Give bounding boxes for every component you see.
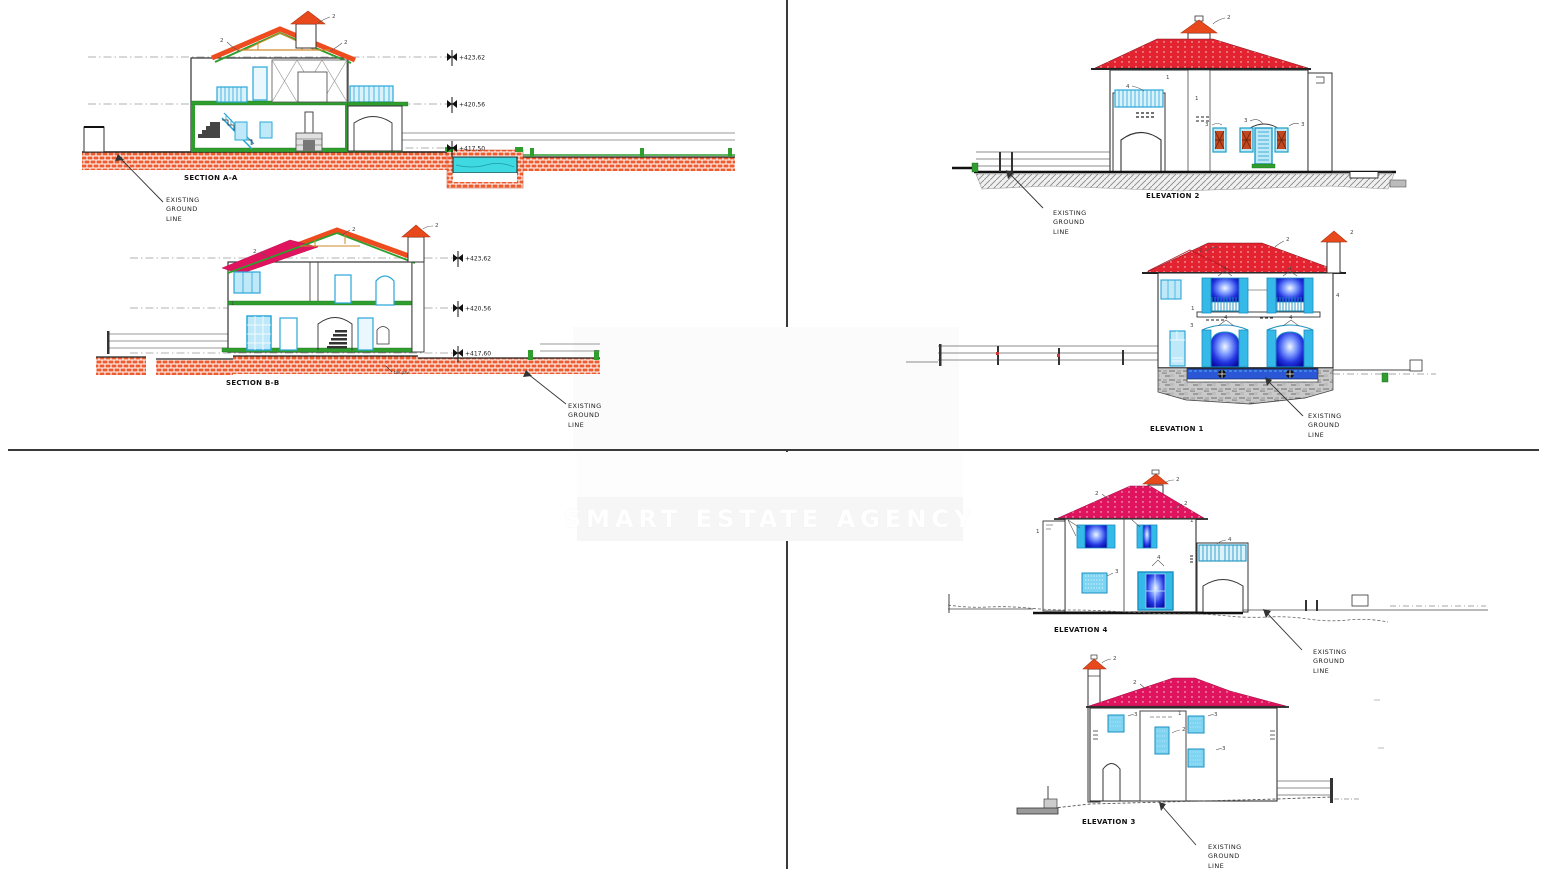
ground-note-leader xyxy=(523,370,566,404)
callout-number: 2 xyxy=(352,227,356,233)
ground-brick-band xyxy=(82,127,735,171)
elevation-2-title: ELEVATION 2 xyxy=(1146,192,1200,200)
callout-number: 3 xyxy=(1115,569,1119,575)
callout-number: 2 xyxy=(344,40,348,46)
level-markers: +423,62 +420,56 +417,60 xyxy=(453,251,491,362)
ground-brick-band xyxy=(96,350,600,375)
hip-roof xyxy=(1142,243,1346,273)
level-value: +423,62 xyxy=(459,55,485,62)
callout-number: 2 xyxy=(1113,656,1117,662)
louvered-door xyxy=(1255,128,1272,164)
elevation-2-drawing: 2 4 1 1 3 3 3 xyxy=(950,8,1405,238)
ground-line-note: EXISTING GROUND LINE xyxy=(1208,843,1260,869)
callout-number: 4 xyxy=(1228,537,1232,543)
garage xyxy=(1190,543,1248,612)
callout-number: 2 xyxy=(220,38,224,44)
elevation-3-drawing: 2 2 1 2 3 3 3 xyxy=(1005,652,1460,867)
callout-number: 3 xyxy=(1205,122,1209,128)
callout-number: 3 xyxy=(1134,712,1138,718)
callout-number: 2 xyxy=(253,249,257,255)
ground-line-note: EXISTING GROUND LINE xyxy=(1313,648,1365,676)
watermark-text: SMART ESTATE AGENCY xyxy=(564,505,977,533)
right-ground-lines xyxy=(1333,360,1436,382)
watermark-box xyxy=(577,452,963,497)
balcony-and-garage xyxy=(348,86,408,151)
level-value: +417,60 xyxy=(465,351,491,358)
callout-number: 2 xyxy=(1227,15,1231,21)
callout-number: 1 xyxy=(1195,96,1199,102)
callout-number: 3 xyxy=(1222,746,1226,752)
callout-number: 4 xyxy=(1223,266,1227,272)
callout-number: 1 xyxy=(1178,711,1182,717)
callout-number: 2 xyxy=(1286,237,1290,243)
ground-note-leader xyxy=(1159,802,1196,845)
callout-number: 2 xyxy=(1176,477,1180,483)
callout-number: 3 xyxy=(1244,118,1248,124)
fence-lines xyxy=(976,152,1110,172)
ground-line-note: EXISTING GROUND LINE xyxy=(1308,412,1360,440)
callout-number: 1 xyxy=(1190,518,1194,524)
callout-number: 4 xyxy=(1157,555,1161,561)
garage xyxy=(1113,90,1165,172)
callout-number: 1 xyxy=(1036,529,1040,535)
elevation-3-title: ELEVATION 3 xyxy=(1082,818,1136,826)
elevation-1-title: ELEVATION 1 xyxy=(1150,425,1204,433)
drawing-sheet: SMART ESTATE AGENCY xyxy=(0,0,1542,869)
callout-number: 4 xyxy=(1336,293,1340,299)
swimming-pool-section xyxy=(445,147,523,188)
callout-number: 2 xyxy=(1184,501,1188,507)
callout-number: 4 xyxy=(1289,315,1293,321)
callout-number: 2 xyxy=(1199,248,1203,254)
hip-roof xyxy=(1091,39,1311,69)
callout-number: 2 xyxy=(435,223,439,229)
hip-roof xyxy=(1086,678,1289,707)
level-markers: +423,62 +420,56 +417,50 xyxy=(447,50,485,157)
callout-number: 2 xyxy=(1182,727,1186,733)
callout-number: 3 xyxy=(1214,712,1218,718)
level-value: +423,62 xyxy=(465,256,491,263)
callout-number: 4 xyxy=(1288,266,1292,272)
fence-lines xyxy=(906,344,1158,366)
arched-door xyxy=(1103,764,1120,802)
section-aa-drawing: +423,62 +420,56 +417,50 2 2 2 xyxy=(78,6,740,222)
section-bb-title: SECTION B-B xyxy=(226,379,279,387)
level-value: +420,56 xyxy=(465,306,491,313)
elevation-4-drawing: 2 2 2 1 4 3 4 1 xyxy=(935,462,1490,682)
callout-number: 4 xyxy=(1224,315,1228,321)
ground-line-note: EXISTING GROUND LINE xyxy=(1053,209,1105,237)
ground-line-note: EXISTING GROUND LINE xyxy=(568,402,620,430)
watermark-band: SMART ESTATE AGENCY xyxy=(577,497,963,541)
callout-number: 1 xyxy=(1191,306,1195,312)
callout-number: 2 xyxy=(1350,230,1354,236)
callout-number: 2 xyxy=(1095,491,1099,497)
callout-number: 3 xyxy=(1301,122,1305,128)
chimney xyxy=(291,11,325,48)
pool-cross-section xyxy=(1158,368,1333,404)
elevation-4-title: ELEVATION 4 xyxy=(1054,626,1108,634)
level-value: +417,50 xyxy=(459,146,485,153)
callout-number: 1 xyxy=(1166,75,1170,81)
paving-note-text: tile pav. xyxy=(394,370,410,375)
section-aa-title: SECTION A-A xyxy=(184,174,238,182)
shuttered-window xyxy=(1213,128,1226,152)
shuttered-window xyxy=(1240,128,1253,152)
ground-note-leader xyxy=(1263,609,1302,650)
callout-number: 2 xyxy=(332,14,336,20)
callout-number: 4 xyxy=(1126,84,1130,90)
callout-number: 3 xyxy=(1190,323,1194,329)
horizontal-divider-line xyxy=(8,449,1539,451)
shuttered-window xyxy=(1275,128,1288,152)
callout-number: 2 xyxy=(1133,680,1137,686)
level-value: +420,56 xyxy=(459,102,485,109)
callout-number: 1 xyxy=(231,301,235,307)
ground-line-note: EXISTING GROUND LINE xyxy=(166,196,218,224)
